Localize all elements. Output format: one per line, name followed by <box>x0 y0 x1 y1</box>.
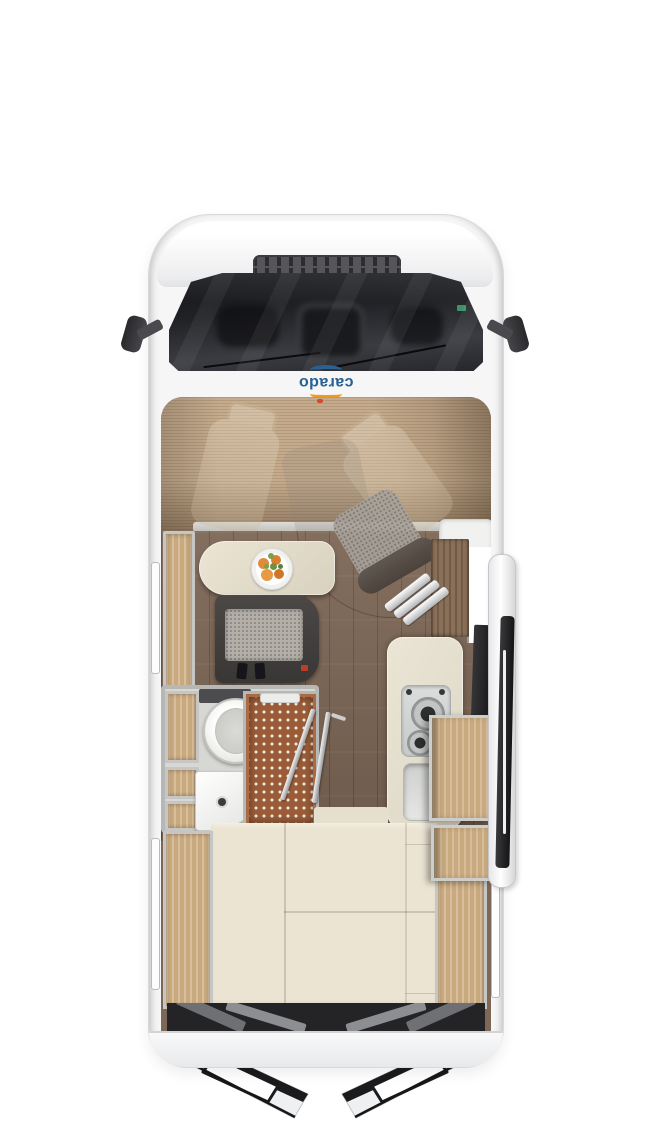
open-shelf-unit <box>429 715 491 821</box>
cab-marker-light <box>317 399 323 403</box>
basin-drain <box>218 798 226 806</box>
vehicle-body: carado <box>148 214 504 1068</box>
motorhome-floorplan-top-view: carado <box>0 0 650 1140</box>
logo-text: carado <box>299 375 354 389</box>
grape <box>270 563 277 570</box>
logo-blue-arc <box>310 365 342 375</box>
brand-logo: carado <box>286 365 366 399</box>
belt-release <box>301 665 308 671</box>
bathroom-cabinet <box>165 691 199 763</box>
grape <box>264 564 269 569</box>
entry-door-open <box>488 554 516 888</box>
side-window-left-lounge <box>151 562 160 674</box>
shower-tray-slats <box>249 697 313 823</box>
dashboard-right-shape <box>391 307 443 345</box>
rear-garage-gap <box>167 1003 485 1033</box>
mattress-seam <box>405 993 437 994</box>
seatbelt-buckle <box>236 663 248 680</box>
seatbelt-buckle <box>254 663 265 680</box>
side-mirror-left <box>124 304 168 356</box>
entry-door-handle <box>503 650 506 834</box>
bathroom-cabinet <box>165 801 199 831</box>
dashboard-console-shape <box>297 303 365 361</box>
interior-floorplan <box>161 397 491 1033</box>
orange-fruit <box>261 569 273 581</box>
fruit-plate <box>251 548 293 590</box>
mattress-seam <box>405 823 407 1009</box>
open-shelf-unit <box>431 825 491 881</box>
dashboard-left-shape <box>217 305 279 347</box>
shower-shelf <box>260 693 300 703</box>
mattress-seam <box>284 911 437 913</box>
grape <box>278 564 283 569</box>
bench-cushion <box>225 609 303 661</box>
rear-bed <box>211 823 437 1009</box>
vent-divider <box>253 266 401 268</box>
hob-knob <box>439 689 445 695</box>
bathroom-cabinet <box>165 767 199 799</box>
windshield <box>169 273 483 371</box>
shower-cubicle <box>243 691 319 829</box>
bedside-shelf-left <box>163 831 213 1009</box>
orange-fruit <box>274 569 284 579</box>
side-window-left-bedroom <box>151 838 160 990</box>
windshield-sticker <box>457 305 466 311</box>
dinette-table <box>199 541 335 595</box>
mattress-seam <box>284 823 286 1009</box>
rear-bumper <box>149 1031 503 1067</box>
side-mirror-right <box>482 304 526 356</box>
left-sideboard <box>163 531 195 701</box>
hob-knob <box>406 689 412 695</box>
grape <box>268 553 274 559</box>
travel-bench-seat <box>215 595 319 683</box>
